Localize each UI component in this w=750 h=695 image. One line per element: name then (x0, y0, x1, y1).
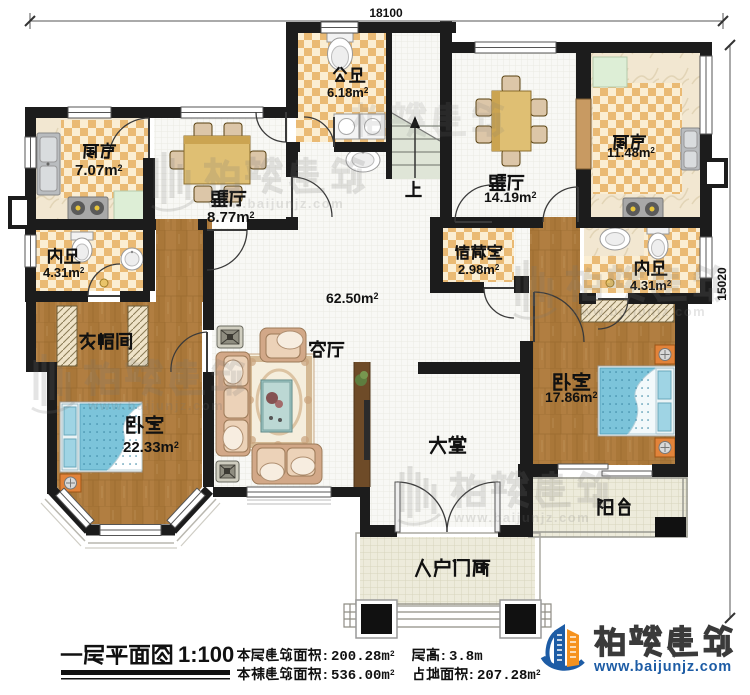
svg-text::: : (469, 666, 474, 682)
svg-text:3.8m: 3.8m (449, 649, 483, 665)
svg-text:14.19m2: 14.19m2 (484, 189, 537, 205)
svg-text:1:100: 1:100 (178, 642, 234, 667)
svg-text:17.86m2: 17.86m2 (545, 389, 598, 405)
svg-text:www.baijunjz.com: www.baijunjz.com (207, 196, 344, 211)
svg-text:536.00m2: 536.00m2 (331, 668, 395, 684)
svg-text:www.baijunjz.com: www.baijunjz.com (593, 659, 732, 675)
svg-text::: : (441, 647, 446, 663)
svg-text:6.18m2: 6.18m2 (327, 85, 369, 100)
svg-text:2.98m2: 2.98m2 (458, 262, 500, 277)
svg-text:8.77m2: 8.77m2 (207, 209, 255, 226)
svg-text:62.50m2: 62.50m2 (326, 290, 379, 306)
svg-text::: : (323, 647, 328, 663)
svg-text:200.28m2: 200.28m2 (331, 649, 395, 665)
svg-text:11.48m2: 11.48m2 (607, 145, 655, 160)
svg-text:4.31m2: 4.31m2 (43, 265, 85, 280)
svg-text:www.baijunjz.com: www.baijunjz.com (87, 398, 224, 413)
svg-text:www.baijunjz.com: www.baijunjz.com (453, 510, 590, 525)
svg-text::: : (323, 666, 328, 682)
svg-text:www.baijunjz.com: www.baijunjz.com (569, 304, 706, 319)
svg-text:22.33m2: 22.33m2 (123, 439, 179, 456)
svg-text:207.28m2: 207.28m2 (477, 668, 541, 684)
svg-text:18100: 18100 (369, 6, 403, 20)
svg-text:15020: 15020 (715, 267, 729, 301)
svg-text:7.07m2: 7.07m2 (75, 162, 123, 179)
